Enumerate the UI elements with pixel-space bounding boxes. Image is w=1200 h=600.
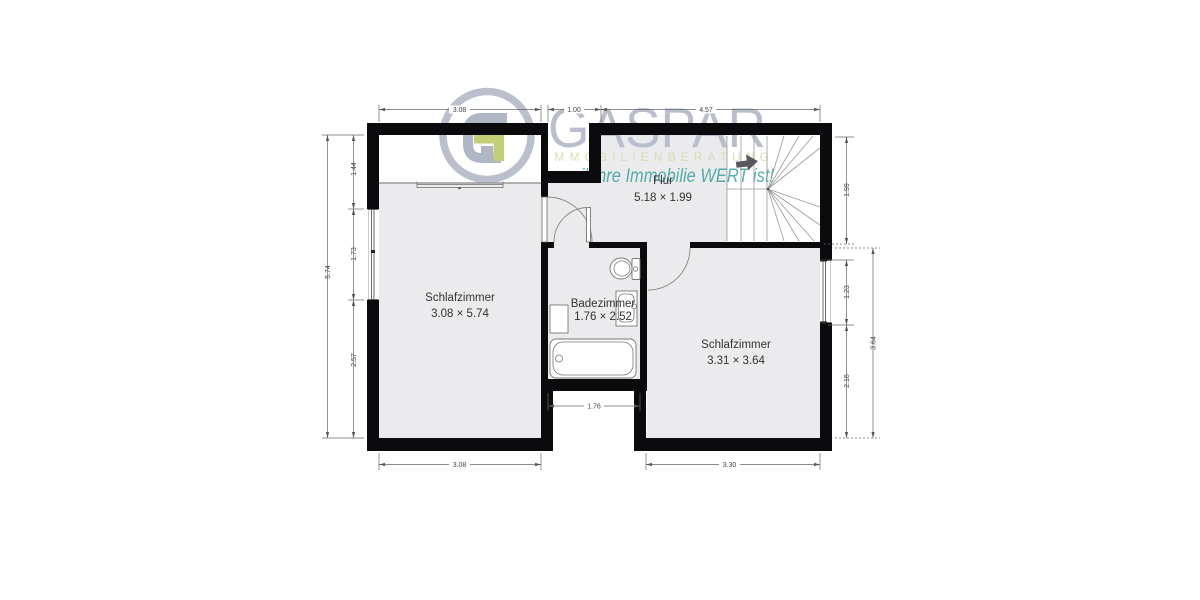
svg-text:3.31 × 3.64: 3.31 × 3.64: [707, 355, 765, 367]
svg-text:Schlafzimmer: Schlafzimmer: [701, 339, 771, 351]
svg-text:3.30: 3.30: [723, 462, 737, 469]
svg-text:1.99: 1.99: [844, 183, 851, 197]
svg-text:4.57: 4.57: [699, 107, 713, 114]
svg-text:1.73: 1.73: [351, 247, 358, 261]
svg-text:Schlafzimmer: Schlafzimmer: [425, 292, 495, 304]
svg-text:1.00: 1.00: [567, 107, 581, 114]
svg-text:1.76 × 2.52: 1.76 × 2.52: [574, 311, 632, 323]
svg-text:5.74: 5.74: [325, 265, 332, 279]
svg-text:2.57: 2.57: [351, 353, 358, 367]
svg-text:3.08 × 5.74: 3.08 × 5.74: [431, 308, 489, 320]
svg-text:1.44: 1.44: [351, 162, 358, 176]
svg-text:2.16: 2.16: [844, 374, 851, 388]
svg-text:Badezimmer: Badezimmer: [571, 298, 636, 310]
svg-text:Flur: Flur: [653, 175, 673, 187]
svg-text:1.23: 1.23: [844, 285, 851, 299]
svg-text:3.08: 3.08: [453, 462, 467, 469]
svg-text:3.08: 3.08: [453, 107, 467, 114]
svg-text:3.64: 3.64: [871, 336, 878, 350]
svg-text:5.18 × 1.99: 5.18 × 1.99: [634, 192, 692, 204]
svg-text:1.76: 1.76: [587, 404, 601, 411]
